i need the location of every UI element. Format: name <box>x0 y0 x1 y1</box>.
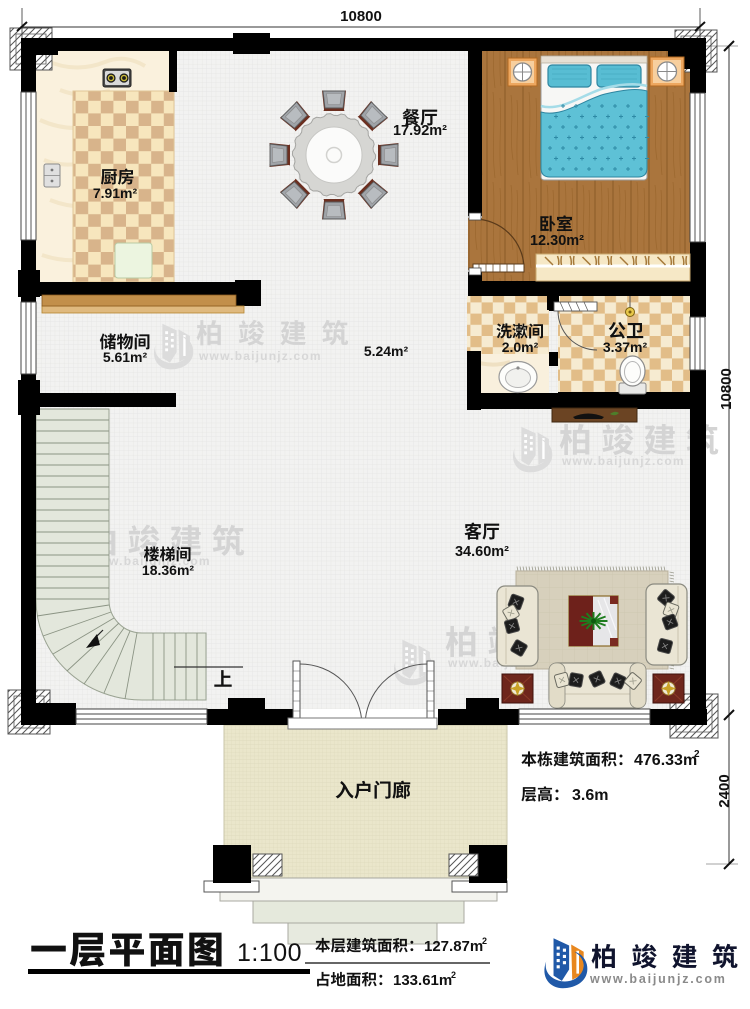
svg-text:www.baijunjz.com: www.baijunjz.com <box>561 454 685 468</box>
svg-text:2: 2 <box>694 749 700 760</box>
svg-text:476.33m: 476.33m <box>634 752 697 769</box>
svg-text:133.61m: 133.61m <box>393 972 452 989</box>
svg-text:www.baijunjz.com: www.baijunjz.com <box>198 349 322 363</box>
svg-text:5.24m²: 5.24m² <box>364 343 409 359</box>
svg-text:10800: 10800 <box>718 368 735 410</box>
svg-text:www.baijunjz.com: www.baijunjz.com <box>589 972 727 986</box>
svg-text:127.87m: 127.87m <box>424 938 483 955</box>
svg-text:18.36m²: 18.36m² <box>142 562 194 578</box>
svg-text:7.91m²: 7.91m² <box>93 185 138 201</box>
svg-text:2: 2 <box>482 936 487 946</box>
svg-text:2.0m²: 2.0m² <box>502 339 539 355</box>
svg-text:10800: 10800 <box>340 8 382 25</box>
svg-text:2: 2 <box>451 970 456 980</box>
svg-text:5.61m²: 5.61m² <box>103 349 148 365</box>
svg-text:2400: 2400 <box>716 774 733 807</box>
svg-text:1:100: 1:100 <box>237 939 302 967</box>
svg-text:12.30m²: 12.30m² <box>530 233 584 249</box>
svg-text:3.37m²: 3.37m² <box>603 339 648 355</box>
svg-text:34.60m²: 34.60m² <box>455 544 509 560</box>
svg-text:17.92m²: 17.92m² <box>393 123 447 139</box>
svg-text:3.6m: 3.6m <box>572 787 608 804</box>
